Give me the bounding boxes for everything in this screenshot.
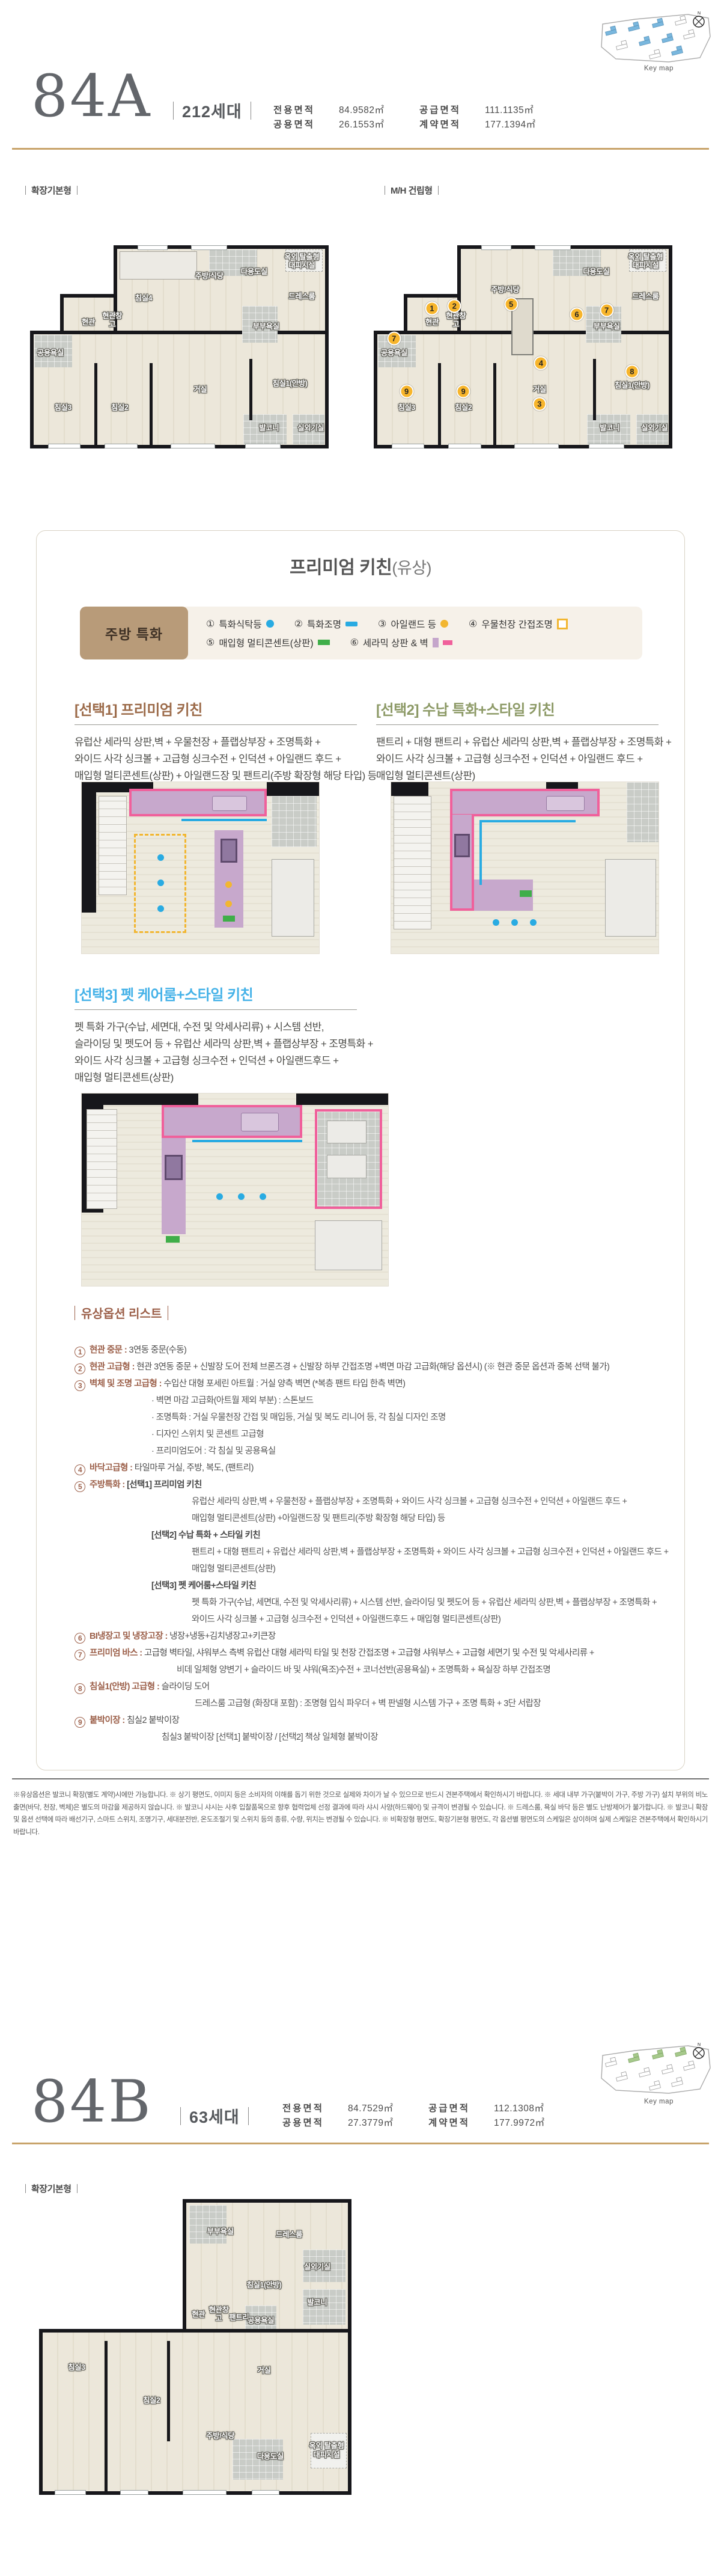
green-bar-swatch	[318, 640, 330, 645]
paid-option-item: 9붙박이장 : 침실2 붙박이장 침실3 붙박이장 [선택1] 붙박이장 / […	[75, 1712, 669, 1746]
disclaimer-text: ※유상옵션은 발코니 확장(별도 계약)시에만 가능합니다. ※ 상기 평면도,…	[13, 1789, 708, 1838]
legend-label: 매입형 멀티콘센트(상판)	[219, 636, 313, 649]
room-label: 옥외 탈출형 대피시설	[283, 253, 320, 271]
building-icon	[627, 2053, 639, 2063]
premium-kitchen-title: 프리미엄 키친(유상)	[37, 552, 684, 579]
legend-label: 세라믹 상판 & 벽	[363, 636, 428, 649]
compass-icon: N	[693, 2043, 704, 2058]
item-text: 현관 3연동 중문 + 신발장 도어 전체 브론즈경 + 신발장 하부 간접조명…	[136, 1362, 609, 1372]
room-label: 침실1(안방)	[272, 379, 307, 388]
item-label: 붙박이장	[90, 1716, 120, 1725]
households-text: 63세대	[189, 2104, 240, 2128]
room-label: 다용도실	[583, 268, 609, 276]
item-text: 슬라이딩 도어	[162, 1682, 210, 1692]
option1-heading: [선택1] 프리미엄 키친	[75, 698, 202, 719]
item-text: 고급형 벽타일, 샤워부스 측벽 유럽산 대형 세라믹 타일 및 천장 간접조명…	[144, 1648, 594, 1658]
divider-bar	[251, 102, 251, 120]
option2-heading: [선택2] 수납 특화+스타일 키친	[376, 698, 555, 719]
paid-option-item: 3벽체 및 조명 고급형 : 수입산 대형 포세린 아트월 : 거실 양측 벽면…	[75, 1375, 669, 1460]
unit-84a-title: 84A	[31, 67, 151, 125]
item-subline: · 디자인 스위치 및 콘센트 고급형	[151, 1426, 669, 1443]
room-label: 실외기실	[297, 424, 324, 432]
legend-num: ⑥	[350, 637, 359, 649]
desc-line: 펫 특화 가구(수납, 세면대, 수전 및 악세사리류) + 시스템 선반,	[75, 1019, 373, 1036]
paid-option-item: 4바닥고급형 : 타일마루 거실, 주방, 복도, (팬트리)	[75, 1460, 669, 1476]
interior-wall	[167, 2341, 170, 2441]
window	[48, 444, 81, 448]
interior-wall	[593, 359, 596, 420]
item-label: 현관 중문	[90, 1345, 122, 1355]
item-subline: [선택2] 수납 특화 + 스타일 키친	[151, 1527, 669, 1544]
legend-item: ③아일랜드 등	[378, 617, 448, 631]
plan-tag-label: 확장기본형	[31, 2182, 71, 2195]
compass-icon: N	[693, 11, 704, 27]
paid-option-item: 1현관 중문 : 3연동 중문(수동)	[75, 1342, 669, 1359]
room-label: 발코니	[307, 2298, 327, 2307]
section-divider-gold	[12, 148, 709, 150]
legend-tab: 주방 특화	[80, 607, 188, 659]
item-label: 프리미엄 바스	[90, 1648, 138, 1658]
paid-options-title: 유상옵션 리스트	[81, 1304, 162, 1321]
room-label: 거실	[193, 385, 207, 394]
keymap-84a: N	[598, 4, 712, 64]
room-label: 실외기실	[304, 2263, 330, 2271]
plan-wing-main	[39, 2329, 351, 2495]
desc-line: 유럽산 세라믹 상판,벽 + 우물천장 + 플랩상부장 + 조명특화 +	[75, 734, 377, 751]
item-subline: · 프리미엄도어 : 각 침실 및 공용욕실	[151, 1443, 669, 1460]
building-icon	[674, 2047, 686, 2057]
area-label: 전용면적	[273, 103, 330, 116]
item-number: 6	[75, 1633, 85, 1644]
blue-dot-swatch	[266, 620, 274, 628]
legend-item: ①특화식탁등	[206, 617, 274, 631]
unit-84a-areas: 전용면적 84.9582㎡ 공급면적 111.1135㎡ 공용면적 26.155…	[273, 102, 563, 131]
room-label: 침실2	[455, 403, 472, 412]
desc-line: 와이드 사각 싱크볼 + 고급형 싱크수전 + 인덕션 + 아일랜드 후드 +	[376, 751, 671, 768]
option3-desc: 펫 특화 가구(수납, 세면대, 수전 및 악세사리류) + 시스템 선반, 슬…	[75, 1019, 373, 1086]
item-label: 침실1(안방) 고급형	[90, 1682, 155, 1692]
divider-bar	[438, 186, 439, 195]
option3-heading: [선택3] 펫 케어룸+스타일 키친	[75, 983, 253, 1004]
title-main: 프리미엄 키친	[290, 558, 392, 578]
interior-wall	[105, 2341, 108, 2495]
building-icon	[604, 2057, 616, 2067]
room-label: 드레스룸	[276, 2230, 302, 2239]
section-divider-gold	[12, 2143, 709, 2144]
interior-wall	[249, 359, 252, 420]
room-label: 공용욕실	[381, 349, 407, 357]
room-label: 부부욕실	[253, 322, 279, 331]
building-icon	[651, 18, 663, 28]
paid-option-item: 2현관 고급형 : 현관 3연동 중문 + 신발장 도어 전체 브론즈경 + 신…	[75, 1359, 669, 1375]
master-bath-zone	[189, 2205, 227, 2244]
room-label: 침실4	[135, 294, 152, 302]
plan-tag-mh-a: M/H 건립형	[385, 184, 439, 197]
area-value: 112.1308㎡	[494, 2101, 572, 2114]
window	[171, 444, 216, 448]
item-label: BI냉장고 및 냉장고장	[90, 1632, 163, 1641]
item-subline: 침실3 붙박이장 [선택1] 붙박이장 / [선택2] 책상 일체형 붙박이장	[162, 1729, 669, 1746]
keymap-caption: Key map	[644, 65, 674, 72]
item-subline: · 벽면 마감 고급화(아트월 제외 부분) : 스톤보드	[151, 1392, 669, 1409]
legend-num: ①	[206, 618, 214, 630]
svg-text:N: N	[698, 11, 701, 16]
legend-num: ③	[378, 618, 386, 630]
building-icon	[615, 2072, 627, 2081]
paid-options-header: 유상옵션 리스트	[75, 1304, 669, 1321]
room-label: 공용욕실	[248, 2316, 274, 2325]
window	[120, 2490, 148, 2495]
plan-tag-label: M/H 건립형	[391, 184, 433, 197]
area-value: 84.7529㎡	[348, 2101, 420, 2114]
room-label: 다용도실	[257, 2452, 284, 2461]
room-label: 침실2	[111, 403, 128, 412]
item-number: 8	[75, 1683, 85, 1694]
item-label: 주방특화	[90, 1480, 120, 1490]
window	[252, 2490, 280, 2495]
lavender-swatch	[433, 638, 439, 647]
room-label: 침실3	[68, 2363, 85, 2372]
desc-line: 슬라이딩 및 펫도어 등 + 유럽산 세라믹 상판,벽 + 플랩상부장 + 조명…	[75, 1036, 373, 1053]
kitchen-counter-shape	[120, 251, 197, 280]
item-text: 3연동 중문(수동)	[129, 1345, 186, 1355]
divider-bar	[77, 186, 78, 195]
item-subline: 매입형 멀티콘센트(상판)	[192, 1561, 669, 1577]
building-icon	[638, 2067, 650, 2077]
interior-wall	[438, 363, 441, 448]
paid-option-item: 5주방특화 : [선택1] 프리미엄 키친 유럽산 세라믹 상판,벽 + 우물천…	[75, 1476, 669, 1628]
kitchen-legend: 주방 특화 ①특화식탁등 ②특화조명 ③아일랜드 등 ④우물천장 간접조명 ⑤매…	[80, 607, 642, 659]
room-label: 주방/식당	[206, 2431, 234, 2440]
item-subline: 드레스룸 고급형 (화장대 포함) : 조명형 입식 파우더 + 벽 판넬형 시…	[195, 1695, 669, 1712]
item-text: 냉장+냉동+김치냉장고+키큰장	[169, 1632, 275, 1641]
area-label: 계약면적	[428, 2116, 485, 2129]
area-label: 계약면적	[419, 117, 476, 130]
kitchen-plan-option3	[82, 1094, 388, 1286]
window	[191, 245, 227, 250]
keymap-caption: Key map	[644, 2098, 674, 2105]
item-text: 수입산 대형 포세린 아트월 : 거실 양측 벽면 (*복층 팬트 타입 한측 …	[163, 1379, 405, 1389]
option2-desc: 팬트리 + 대형 팬트리 + 유럽산 세라믹 상판,벽 + 플랩상부장 + 조명…	[376, 734, 671, 785]
room-label: 침실2	[143, 2396, 160, 2404]
divider-bar	[25, 2184, 26, 2193]
desc-line: 와이드 사각 싱크볼 + 고급형 싱크수전 + 인덕션 + 아일랜드후드 +	[75, 1053, 373, 1069]
unit-84b-title: 84B	[31, 2073, 153, 2131]
window	[105, 444, 138, 448]
window	[392, 444, 425, 448]
paid-option-item: 8침실1(안방) 고급형 : 슬라이딩 도어 드레스룸 고급형 (화장대 포함)…	[75, 1678, 669, 1712]
option-marker: 7	[600, 304, 613, 317]
item-number: 4	[75, 1464, 85, 1475]
disclaimer-divider	[12, 1778, 709, 1779]
legend-num: ②	[294, 618, 303, 630]
kitchen-plan-option1	[82, 782, 319, 953]
building-icon	[651, 2049, 663, 2059]
legend-label: 특화조명	[307, 617, 341, 631]
building-icon	[674, 16, 686, 25]
floorplan-84a-extended: 침실4 주방/식당 다용도실 옥외 탈출형 대피시설 드레스룸 현관 현관창고 …	[30, 245, 329, 448]
item-subline: [선택3] 펫 케어룸+스타일 키친	[151, 1577, 669, 1594]
legend-label: 우물천장 간접조명	[481, 617, 552, 631]
divider-bar	[180, 2107, 181, 2125]
item-subline: 유럽산 세라믹 상판,벽 + 우물천장 + 플랩상부장 + 조명특화 + 와이드…	[192, 1493, 669, 1510]
divider-bar	[385, 186, 385, 195]
unit-84b-households: 63세대	[180, 2104, 249, 2128]
room-label: 침실1(안방)	[247, 2280, 282, 2289]
yellow-square-swatch	[557, 619, 568, 629]
item-subline: 펫 특화 가구(수납, 세면대, 수전 및 악세사리류) + 시스템 선반, 슬…	[192, 1594, 669, 1611]
room-label: 침실3	[398, 403, 415, 412]
paid-option-item: 6BI냉장고 및 냉장고장 : 냉장+냉동+김치냉장고+키큰장	[75, 1628, 669, 1645]
interior-wall	[94, 363, 97, 448]
item-number: 1	[75, 1347, 85, 1357]
window	[589, 444, 625, 448]
room-label: 거실	[257, 2366, 270, 2375]
room-label: 다용도실	[241, 268, 267, 276]
window	[514, 444, 559, 448]
building-icon	[627, 22, 639, 31]
room-label: 거실	[533, 385, 546, 394]
area-value: 177.1394㎡	[485, 117, 563, 130]
room-label: 부부욕실	[207, 2227, 234, 2236]
legend-item: ⑤매입형 멀티콘센트(상판)	[206, 636, 330, 649]
window	[535, 245, 571, 250]
room-label: 공용욕실	[37, 349, 64, 357]
divider-bar	[168, 1306, 168, 1320]
desc-line: 매입형 멀티콘센트(상판)	[75, 1069, 373, 1086]
keymap-84b: N	[598, 2035, 712, 2095]
window	[138, 245, 168, 250]
room-label: 주방/식당	[195, 272, 224, 280]
window	[448, 444, 481, 448]
item-text: 침실2 붙박이장	[127, 1716, 179, 1725]
item-subline: 팬트리 + 대형 팬트리 + 유럽산 세라믹 상판,벽 + 플랩상부장 + 조명…	[192, 1544, 669, 1561]
item-subline: 매입형 멀티콘센트(상판) +아일랜드장 및 팬트리(주방 확장형 해당 타입)…	[192, 1510, 669, 1527]
legend-body: ①특화식탁등 ②특화조명 ③아일랜드 등 ④우물천장 간접조명 ⑤매입형 멀티콘…	[182, 607, 642, 659]
building-icon	[671, 2077, 683, 2087]
item-label: 현관 고급형	[90, 1362, 130, 1372]
option-marker: 5	[504, 298, 518, 311]
desc-line: 와이드 사각 싱크볼 + 고급형 싱크수전 + 인덕션 + 아일랜드 후드 +	[75, 751, 377, 768]
legend-item: ⑥세라믹 상판 & 벽	[350, 636, 452, 649]
premium-kitchen-section: 프리미엄 키친(유상) 주방 특화 ①특화식탁등 ②특화조명 ③아일랜드 등 ④…	[36, 530, 685, 1770]
building-icon	[683, 29, 695, 39]
room-label: 현관	[425, 318, 439, 326]
legend-item: ②특화조명	[294, 617, 357, 631]
legend-label: 특화식탁등	[219, 617, 261, 631]
room-label: 현관창고	[446, 312, 466, 329]
households-text: 212세대	[182, 99, 242, 122]
paid-options-items: 1현관 중문 : 3연동 중문(수동) 2현관 고급형 : 현관 3연동 중문 …	[75, 1342, 669, 1746]
item-number: 5	[75, 1481, 85, 1492]
option-marker: 6	[570, 307, 583, 321]
legend-num: ⑤	[206, 637, 214, 649]
room-label: 팬트리	[229, 2313, 249, 2322]
legend-label: 아일랜드 등	[391, 617, 436, 631]
interior-wall	[493, 363, 496, 448]
area-value: 84.9582㎡	[339, 103, 411, 116]
unit-84a-households: 212세대	[173, 99, 251, 122]
item-number: 7	[75, 1650, 85, 1660]
room-label: 옥외 탈출형 대피시설	[627, 253, 664, 271]
balcony-zone	[303, 2289, 345, 2325]
building-icon	[638, 36, 650, 46]
yellow-dot-swatch	[440, 620, 448, 628]
item-text: [선택1] 프리미엄 키친	[127, 1480, 202, 1490]
plan-tag-label: 확장기본형	[31, 184, 71, 197]
area-value: 177.9972㎡	[494, 2116, 572, 2129]
building-icon	[604, 26, 616, 35]
room-label: 현관창고	[102, 312, 123, 329]
room-label: 주방/식당	[491, 286, 519, 294]
area-label: 공용면적	[282, 2116, 339, 2129]
title-suffix: (유상)	[392, 559, 431, 577]
kitchen-plan-option2	[391, 782, 659, 953]
floorplan-84b-extended: 부부욕실 드레스룸 실외기실 침실1(안방) 발코니 현관 현관창고 팬트리 공…	[39, 2199, 351, 2495]
building-icon	[683, 2061, 695, 2070]
room-label: 침실3	[54, 403, 71, 412]
paid-option-item: 7프리미엄 바스 : 고급형 벽타일, 샤워부스 측벽 유럽산 대형 세라믹 타…	[75, 1645, 669, 1678]
brochure-page: 84A 212세대 전용면적 84.9582㎡ 공급면적 111.1135㎡ 공…	[0, 0, 721, 2576]
item-subline: · 조명특화 : 거실 우물천장 간접 및 매입등, 거실 및 복도 리니어 등…	[151, 1409, 669, 1426]
divider-bar	[248, 2107, 249, 2125]
room-label: 현관창고	[208, 2306, 229, 2324]
divider-bar	[173, 102, 174, 120]
building-icon	[661, 33, 673, 43]
window	[55, 2490, 86, 2495]
pink-bar-swatch	[443, 640, 452, 645]
building-icon	[661, 2064, 673, 2074]
option1-desc: 유럽산 세라믹 상판,벽 + 우물천장 + 플랩상부장 + 조명특화 + 와이드…	[75, 734, 377, 785]
floorplan-84a-mh: 주방/식당 다용도실 옥외 탈출형 대피시설 드레스룸 현관 현관창고 부부욕실…	[374, 245, 672, 448]
building-icon	[648, 2081, 660, 2090]
item-number: 2	[75, 1363, 85, 1374]
room-label: 발코니	[259, 424, 279, 432]
option-marker: 9	[400, 385, 413, 399]
room-label: 현관	[192, 2310, 205, 2319]
area-label: 공급면적	[428, 2101, 485, 2114]
area-label: 공용면적	[273, 117, 330, 130]
divider-bar	[77, 2184, 78, 2193]
desc-line: 팬트리 + 대형 팬트리 + 유럽산 세라믹 상판,벽 + 플랩상부장 + 조명…	[376, 734, 671, 751]
window	[183, 2490, 227, 2495]
room-label: 침실1(안방)	[615, 381, 650, 390]
item-subline: 와이드 사각 싱크볼 + 고급형 싱크수전 + 인덕션 + 아일랜드후드 + 매…	[192, 1611, 669, 1628]
blue-bar-swatch	[345, 622, 357, 626]
room-label: 부부욕실	[594, 322, 620, 331]
divider-bar	[25, 186, 26, 195]
paid-options-list: 유상옵션 리스트 1현관 중문 : 3연동 중문(수동) 2현관 고급형 : 현…	[75, 1304, 669, 1746]
divider-bar	[75, 1306, 75, 1320]
item-label: 바닥고급형	[90, 1463, 128, 1473]
building-icon	[615, 40, 627, 50]
building-icon	[671, 46, 683, 55]
window	[481, 245, 511, 250]
room-label: 발코니	[600, 424, 619, 432]
option-marker: 2	[448, 299, 461, 313]
room-label: 현관	[82, 318, 95, 326]
option2-rule	[376, 724, 659, 725]
area-value: 111.1135㎡	[485, 103, 563, 116]
plan-tag-extended-a: 확장기본형	[25, 184, 78, 197]
option-marker: 4	[534, 356, 548, 370]
item-label: 벽체 및 조명 고급형	[90, 1379, 157, 1389]
area-value: 27.3779㎡	[348, 2116, 420, 2129]
plan-tag-extended-b: 확장기본형	[25, 2182, 78, 2195]
option-marker: 1	[425, 301, 439, 315]
window	[245, 444, 281, 448]
legend-item: ④우물천장 간접조명	[469, 617, 568, 631]
svg-text:N: N	[698, 2043, 701, 2047]
item-number: 3	[75, 1380, 85, 1391]
room-label: 옥외 탈출형 대피시설	[308, 2442, 345, 2459]
option1-rule	[75, 724, 357, 725]
unit-84b-areas: 전용면적 84.7529㎡ 공급면적 112.1308㎡ 공용면적 27.377…	[282, 2100, 572, 2129]
option-marker: 3	[532, 397, 546, 411]
item-subline: 비데 일체형 양변기 + 슬라이드 바 및 샤워(욕조)수전 + 코너선반(공용…	[177, 1662, 669, 1678]
interior-wall	[150, 363, 153, 448]
option3-rule	[75, 1009, 357, 1010]
option-marker: 7	[387, 332, 401, 346]
room-label: 실외기실	[641, 424, 668, 432]
item-number: 9	[75, 1717, 85, 1728]
option-marker: 8	[625, 364, 639, 378]
area-value: 26.1553㎡	[339, 117, 411, 130]
option-marker: 9	[457, 385, 470, 399]
legend-num: ④	[469, 618, 477, 630]
area-label: 전용면적	[282, 2101, 339, 2114]
item-text: 타일마루 거실, 주방, 복도, (팬트리)	[135, 1463, 254, 1473]
room-label: 드레스룸	[288, 292, 315, 300]
area-label: 공급면적	[419, 103, 476, 116]
room-label: 드레스룸	[632, 292, 659, 300]
building-icon	[648, 49, 660, 59]
